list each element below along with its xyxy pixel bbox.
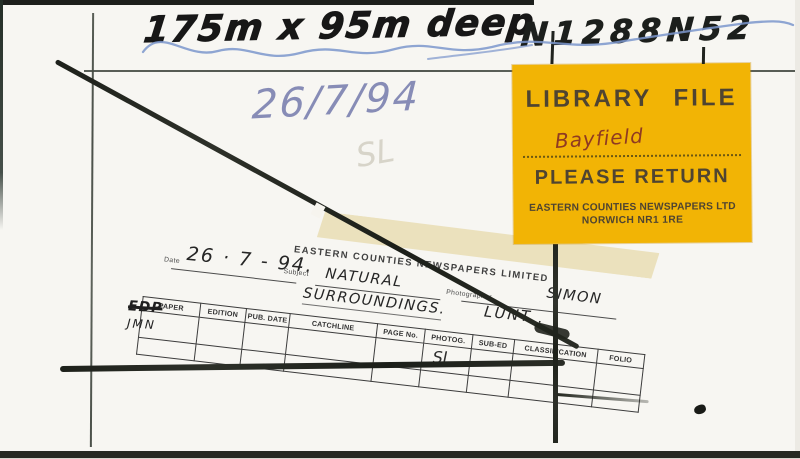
sticker-company: EASTERN COUNTIES NEWSPAPERS LTD (513, 201, 751, 214)
library-sticker: LIBRARY FILE Bayfield PLEASE RETURN EAST… (512, 63, 752, 244)
sticker-handwritten-name: Bayfield (554, 124, 644, 153)
paper-entry-crossed-out: EDP (128, 298, 163, 316)
sticker-return-label: PLEASE RETURN (513, 165, 751, 190)
stamp-block: EASTERN COUNTIES NEWSPAPERS LIMITED Date… (120, 224, 784, 458)
photo-edge-right (795, 0, 800, 459)
sticker-name-line: Bayfield (523, 129, 741, 158)
pen-tick-right (702, 47, 705, 64)
sticker-address: NORWICH NR1 1RE (514, 214, 752, 227)
marker-reference-text: N1288N52 (520, 8, 758, 53)
faint-initials-scribble: SL (353, 131, 397, 175)
photo-edge-top (0, 0, 534, 5)
photo-edge-left (0, 0, 3, 230)
photo-reverse-scan: EASTERN COUNTIES NEWSPAPERS LIMITED Date… (0, 0, 800, 459)
sticker-title: LIBRARY FILE (512, 84, 750, 114)
marker-dimensions-text: 175m x 95m deep (142, 2, 538, 51)
date-label: Date (164, 256, 181, 265)
paper-entry-scribble: EDP JMN (127, 298, 163, 332)
paper-entry-initials: JMN (127, 316, 162, 332)
charcoal-vertical-line (553, 244, 558, 443)
ballpoint-date-scribble: 26/7/94 (251, 74, 421, 129)
pen-tick-left (550, 31, 554, 64)
